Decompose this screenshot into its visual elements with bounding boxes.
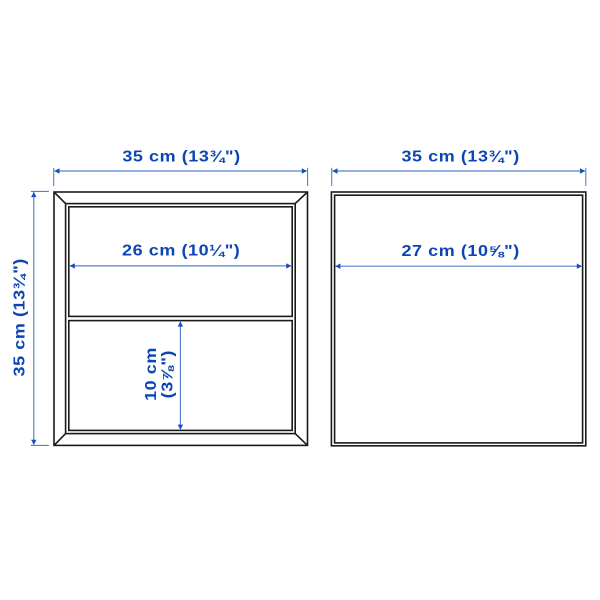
svg-text:35 cm (13¾"): 35 cm (13¾") [401,148,519,166]
svg-text:10 cm: 10 cm [142,347,160,401]
svg-text:35 cm (13¾"): 35 cm (13¾") [122,148,240,166]
svg-text:27 cm (10⅝"): 27 cm (10⅝") [401,242,519,260]
svg-text:26 cm (10¼"): 26 cm (10¼") [122,242,240,260]
svg-text:(3⅞"): (3⅞") [159,350,177,398]
svg-text:35 cm (13¾"): 35 cm (13¾") [11,258,29,376]
